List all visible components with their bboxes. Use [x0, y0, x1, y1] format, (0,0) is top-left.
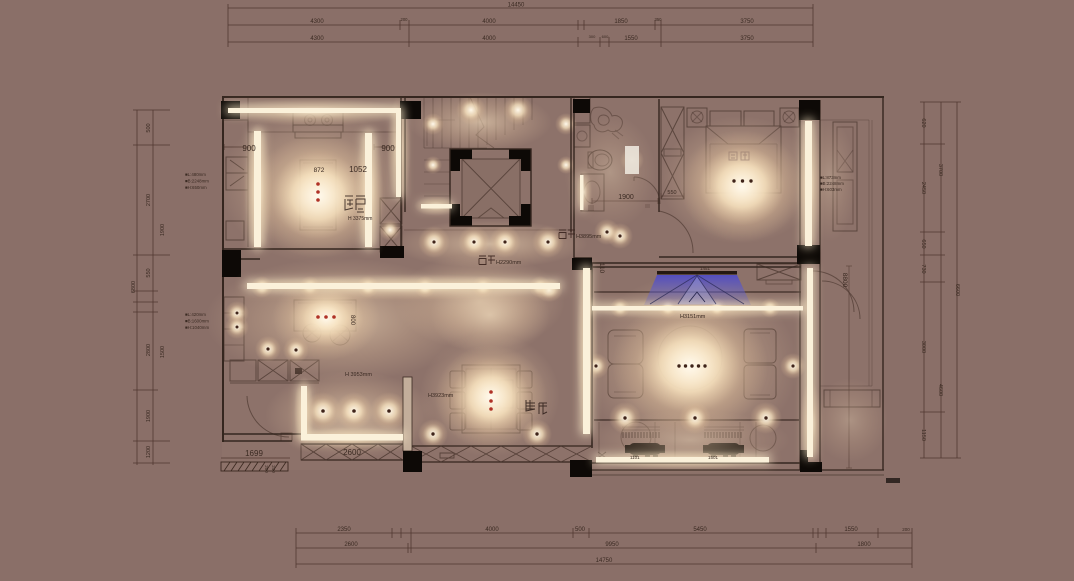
svg-text:200: 200 [401, 17, 409, 22]
svg-text:1101: 1101 [630, 455, 640, 460]
svg-text:H3895mm: H3895mm [576, 234, 602, 240]
svg-text:900: 900 [242, 144, 256, 153]
svg-text:4300: 4300 [310, 36, 324, 42]
svg-text:1052: 1052 [349, 165, 367, 174]
svg-text:1150: 1150 [920, 429, 926, 441]
svg-text:872: 872 [314, 167, 325, 174]
svg-text:1200: 1200 [146, 446, 152, 458]
svg-text:■L:420mm: ■L:420mm [185, 312, 206, 317]
svg-text:2350: 2350 [337, 527, 351, 533]
svg-text:1550: 1550 [624, 36, 638, 42]
svg-text:3000: 3000 [920, 341, 926, 353]
svg-text:4300: 4300 [310, 19, 324, 25]
svg-text:900: 900 [381, 144, 395, 153]
svg-text:800: 800 [349, 315, 355, 326]
svg-text:■L:873mm: ■L:873mm [820, 175, 841, 180]
svg-text:3700: 3700 [937, 164, 943, 176]
svg-text:620: 620 [920, 118, 926, 127]
svg-text:200: 200 [264, 465, 269, 473]
svg-text:■H:603mm: ■H:603mm [820, 187, 842, 192]
svg-text:H 3953mm: H 3953mm [345, 372, 372, 378]
svg-text:2450: 2450 [920, 182, 926, 194]
svg-text:6800: 6800 [131, 281, 137, 293]
svg-text:1850: 1850 [614, 19, 628, 25]
svg-text:730: 730 [920, 264, 926, 273]
svg-text:1500: 1500 [160, 346, 166, 358]
svg-text:4000: 4000 [482, 19, 496, 25]
svg-text:5450: 5450 [693, 527, 707, 533]
svg-text:H 3375mm: H 3375mm [348, 216, 372, 222]
svg-text:1900: 1900 [146, 410, 152, 422]
svg-text:500: 500 [575, 527, 586, 533]
svg-text:8800: 8800 [841, 273, 848, 288]
svg-text:■B:2248mm: ■B:2248mm [820, 181, 844, 186]
svg-text:■L:480mm: ■L:480mm [185, 172, 206, 177]
svg-text:■B:2248mm: ■B:2248mm [185, 179, 209, 184]
svg-text:500: 500 [146, 123, 152, 132]
svg-text:650: 650 [920, 239, 926, 248]
svg-text:300: 300 [589, 34, 596, 39]
svg-text:550: 550 [146, 268, 152, 277]
svg-text:H3151mm: H3151mm [680, 314, 706, 320]
svg-text:4000: 4000 [485, 527, 499, 533]
svg-text:350: 350 [655, 17, 663, 22]
svg-text:4600: 4600 [937, 384, 943, 396]
svg-text:2800: 2800 [146, 344, 152, 356]
svg-text:H2290mm: H2290mm [496, 260, 522, 266]
svg-text:14450: 14450 [508, 3, 525, 9]
svg-text:1900: 1900 [618, 194, 634, 201]
svg-text:550: 550 [667, 190, 676, 196]
svg-text:3750: 3750 [740, 36, 754, 42]
svg-text:1800: 1800 [857, 542, 871, 548]
svg-text:240: 240 [271, 465, 276, 473]
svg-text:200: 200 [902, 527, 910, 532]
svg-text:1699: 1699 [245, 449, 263, 458]
svg-text:■B:1600mm: ■B:1600mm [185, 319, 209, 324]
svg-text:14750: 14750 [596, 558, 613, 564]
svg-text:2600: 2600 [344, 542, 358, 548]
svg-text:■H:1040mm: ■H:1040mm [185, 325, 209, 330]
svg-text:1501: 1501 [708, 455, 719, 460]
svg-text:H3923mm: H3923mm [428, 393, 454, 399]
svg-text:9950: 9950 [605, 542, 619, 548]
svg-text:3750: 3750 [740, 19, 754, 25]
svg-text:1550: 1550 [844, 527, 858, 533]
svg-text:110: 110 [598, 263, 605, 274]
svg-text:4000: 4000 [482, 36, 496, 42]
svg-text:6600: 6600 [954, 284, 960, 296]
svg-text:2700: 2700 [146, 194, 152, 206]
svg-text:■H:650mm: ■H:650mm [185, 185, 207, 190]
svg-text:1900: 1900 [160, 224, 166, 236]
svg-text:2600: 2600 [343, 448, 361, 457]
svg-text:600: 600 [602, 34, 609, 39]
svg-text:1451: 1451 [700, 266, 711, 271]
